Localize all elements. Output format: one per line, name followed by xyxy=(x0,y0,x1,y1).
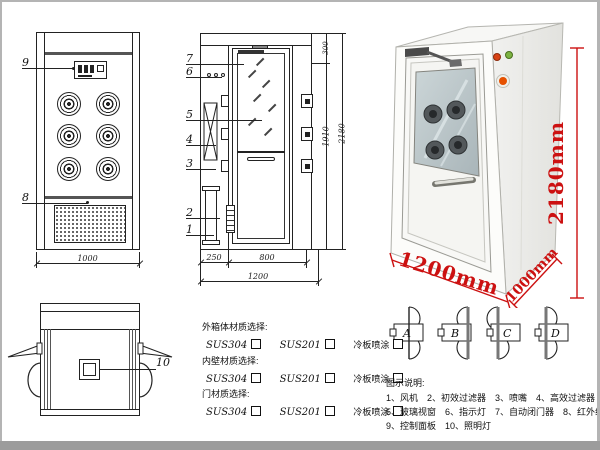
sus304-checkbox[interactable] xyxy=(251,339,261,349)
legend-line-2: 5、玻璃视窗6、指示灯7、自动闭门器8、红外线感应器 xyxy=(386,405,600,418)
sus201-checkbox[interactable] xyxy=(325,373,335,383)
side-view-drawing: 7 6 5 4 3 2 1 250 800 1200 300 1910 2180 xyxy=(0,0,360,300)
callout-1: 1 xyxy=(186,223,193,236)
red-indicator-light xyxy=(494,54,501,61)
door-option-c: C xyxy=(483,304,525,362)
sus201-label: SUS201 xyxy=(280,340,321,351)
legend-line-3: 9、控制面板10、照明灯 xyxy=(386,419,500,432)
dim-1200: 1200 xyxy=(228,272,288,281)
callout-10: 10 xyxy=(156,356,170,369)
dim-2180: 2180 xyxy=(338,121,347,147)
dim-height-label: 2180mm xyxy=(544,121,568,225)
sus201-label: SUS201 xyxy=(280,407,321,418)
coldplate-label: 冷板喷涂 xyxy=(353,374,389,384)
coldplate-label: 冷板喷涂 xyxy=(353,407,389,417)
door-option-icons: A B C D xyxy=(380,304,580,364)
dim-250: 250 xyxy=(200,253,228,262)
sus304-checkbox[interactable] xyxy=(251,373,261,383)
product-photo: 2180mm 1200mm 1000mm xyxy=(383,8,593,308)
dim-300: 300 xyxy=(322,36,330,60)
height-dimension xyxy=(570,48,584,298)
sus304-label: SUS304 xyxy=(206,374,247,385)
photo-glass-window xyxy=(414,68,479,176)
dim-800: 800 xyxy=(228,253,306,262)
material-group1-options: SUS304 SUS201 冷板喷涂 xyxy=(206,335,417,353)
door-glass xyxy=(239,55,283,150)
frame-top xyxy=(0,0,600,2)
sus304-label: SUS304 xyxy=(206,340,247,351)
air-shower-spec-sheet: 9 8 1000 xyxy=(0,0,600,450)
green-indicator-light xyxy=(506,52,513,59)
door-swing-left xyxy=(6,339,44,399)
material-group2-title: 内壁材质选择: xyxy=(202,354,259,367)
sus201-checkbox[interactable] xyxy=(325,339,335,349)
callout-2: 2 xyxy=(186,206,193,219)
legend-line-1: 1、风机2、初效过滤器3、喷嘴4、高效过滤器 xyxy=(386,391,600,404)
legend-title: 图示说明: xyxy=(386,376,425,389)
sus201-checkbox[interactable] xyxy=(325,406,335,416)
frame-bottom xyxy=(0,441,600,450)
callout-4: 4 xyxy=(186,133,193,146)
door-handle xyxy=(247,157,275,161)
top-view-drawing: 10 xyxy=(0,295,190,425)
coldplate-label: 冷板喷涂 xyxy=(353,340,389,350)
door-option-b: B xyxy=(434,304,476,362)
legend: 图示说明: 1、风机2、初效过滤器3、喷嘴4、高效过滤器 5、玻璃视窗6、指示灯… xyxy=(386,376,596,440)
coldplate-checkbox[interactable] xyxy=(393,339,403,349)
callout-6: 6 xyxy=(186,65,193,78)
sus304-label: SUS304 xyxy=(206,407,247,418)
door-option-d: D xyxy=(531,304,573,362)
sus304-checkbox[interactable] xyxy=(251,406,261,416)
dim-1910: 1910 xyxy=(322,124,331,150)
svg-text:D: D xyxy=(550,327,560,340)
sus201-label: SUS201 xyxy=(280,374,321,385)
callout-5: 5 xyxy=(186,108,193,121)
material-group1-title: 外箱体材质选择: xyxy=(202,320,268,333)
callout-7: 7 xyxy=(186,52,193,65)
svg-text:C: C xyxy=(503,327,512,340)
svg-text:B: B xyxy=(450,327,459,340)
frame-left xyxy=(0,0,2,450)
callout-3: 3 xyxy=(186,157,193,170)
material-group3-title: 门材质选择: xyxy=(202,387,250,400)
door-option-a: A xyxy=(386,304,428,362)
material-selection: 外箱体材质选择: SUS304 SUS201 冷板喷涂 内壁材质选择: SUS3… xyxy=(202,320,377,420)
